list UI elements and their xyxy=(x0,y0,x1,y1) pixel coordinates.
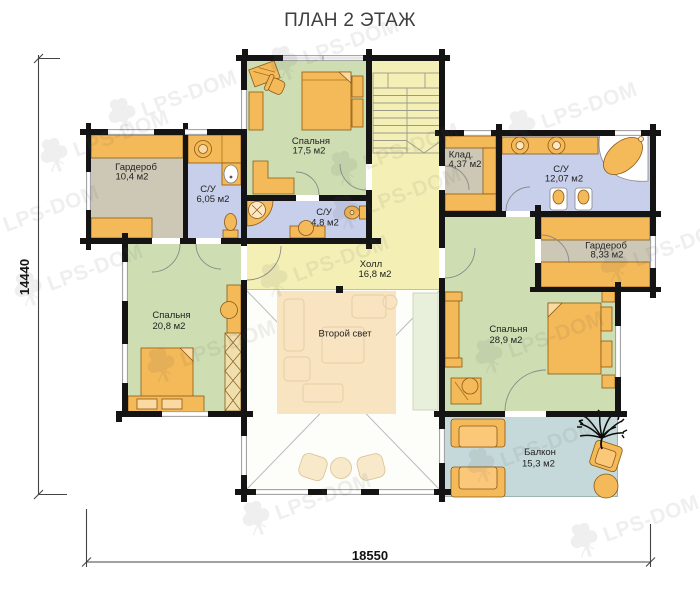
svg-text:С/У: С/У xyxy=(316,207,333,218)
svg-text:12,07 м2: 12,07 м2 xyxy=(545,174,583,185)
svg-text:16,8 м2: 16,8 м2 xyxy=(359,269,392,280)
svg-text:Спальня: Спальня xyxy=(489,324,527,335)
svg-text:17,5 м2: 17,5 м2 xyxy=(293,146,326,157)
svg-text:10,4 м2: 10,4 м2 xyxy=(116,172,149,183)
svg-text:4,8 м2: 4,8 м2 xyxy=(311,218,339,229)
svg-text:6,05 м2: 6,05 м2 xyxy=(197,194,230,205)
svg-text:Спальня: Спальня xyxy=(152,310,190,321)
svg-text:20,8 м2: 20,8 м2 xyxy=(153,321,186,332)
svg-text:18550: 18550 xyxy=(352,548,388,563)
svg-text:Второй свет: Второй свет xyxy=(318,329,372,340)
